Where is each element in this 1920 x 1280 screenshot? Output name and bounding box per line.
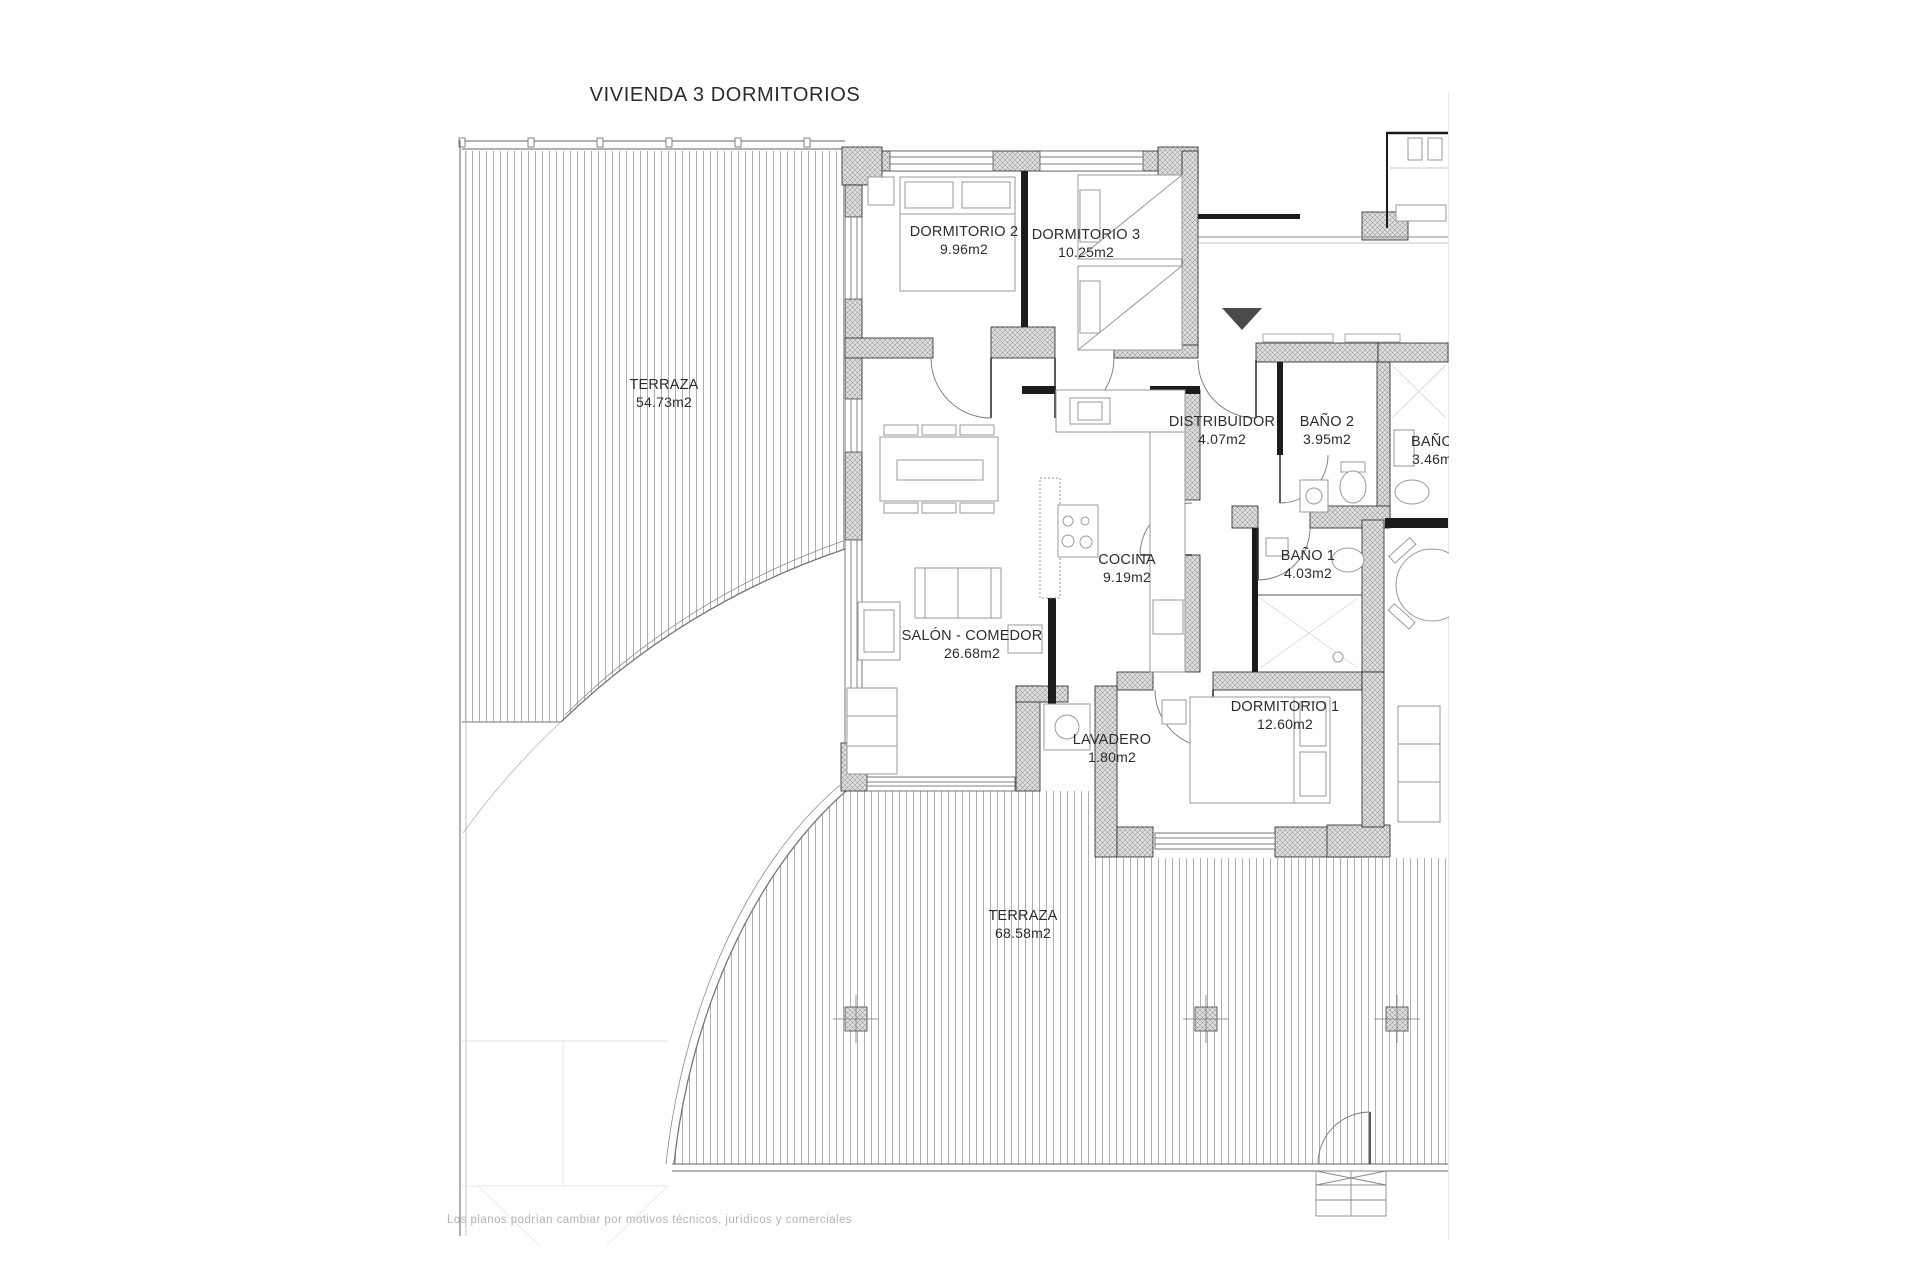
room-name: DORMITORIO 1 [1231,699,1339,716]
room-area: 4.07m2 [1169,431,1275,448]
room-name: SALÓN - COMEDOR [902,628,1043,645]
room-area: 54.73m2 [629,394,698,411]
room-name: TERRAZA [629,377,698,394]
floor-plan-page: VIVIENDA 3 DORMITORIOS TERRAZA 54.73m2 D… [0,0,1920,1280]
room-label-lavadero: LAVADERO 1.80m2 [1073,732,1151,765]
room-area: 9.96m2 [910,241,1018,258]
room-name: DORMITORIO 3 [1032,227,1140,244]
terrace-steps [1316,1171,1386,1216]
room-area: 3.46m [1411,451,1449,468]
room-label-dormitorio-3: DORMITORIO 3 10.25m2 [1032,227,1140,260]
room-label-bano-2: BAÑO 2 3.95m2 [1300,414,1354,447]
room-name: LAVADERO [1073,732,1151,749]
room-label-cocina: COCINA 9.19m2 [1098,552,1156,585]
room-name: DORMITORIO 2 [910,224,1018,241]
room-name: DISTRIBUIDOR [1169,414,1275,431]
room-label-terraza-superior: TERRAZA 54.73m2 [629,377,698,410]
room-label-bano-1: BAÑO 1 4.03m2 [1281,548,1335,581]
floor-plan-drawing [0,0,1449,1280]
room-area: 68.58m2 [988,925,1057,942]
room-area: 9.19m2 [1098,569,1156,586]
room-name: BAÑO [1411,434,1449,451]
room-name: TERRAZA [988,908,1057,925]
room-name: BAÑO 2 [1300,414,1354,431]
entrance-arrow-icon [1222,308,1262,330]
entry-walkway [1198,237,1448,330]
room-area: 10.25m2 [1032,244,1140,261]
room-area: 26.68m2 [902,645,1043,662]
plan-title: VIVIENDA 3 DORMITORIOS [590,84,861,107]
room-area: 12.60m2 [1231,716,1339,733]
room-area: 3.95m2 [1300,431,1354,448]
room-name: BAÑO 1 [1281,548,1335,565]
room-area: 1.80m2 [1073,749,1151,766]
plan-clip-region: VIVIENDA 3 DORMITORIOS TERRAZA 54.73m2 D… [0,0,1449,1280]
room-label-bano-contiguo: BAÑO 3.46m [1411,434,1449,467]
room-name: COCINA [1098,552,1156,569]
plan-disclaimer: Los planos podrían cambiar por motivos t… [447,1214,852,1226]
room-label-salon-comedor: SALÓN - COMEDOR 26.68m2 [902,628,1043,661]
room-label-terraza-inferior: TERRAZA 68.58m2 [988,908,1057,941]
room-area: 4.03m2 [1281,565,1335,582]
room-label-dormitorio-2: DORMITORIO 2 9.96m2 [910,224,1018,257]
room-label-distribuidor: DISTRIBUIDOR 4.07m2 [1169,414,1275,447]
room-label-dormitorio-1: DORMITORIO 1 12.60m2 [1231,699,1339,732]
